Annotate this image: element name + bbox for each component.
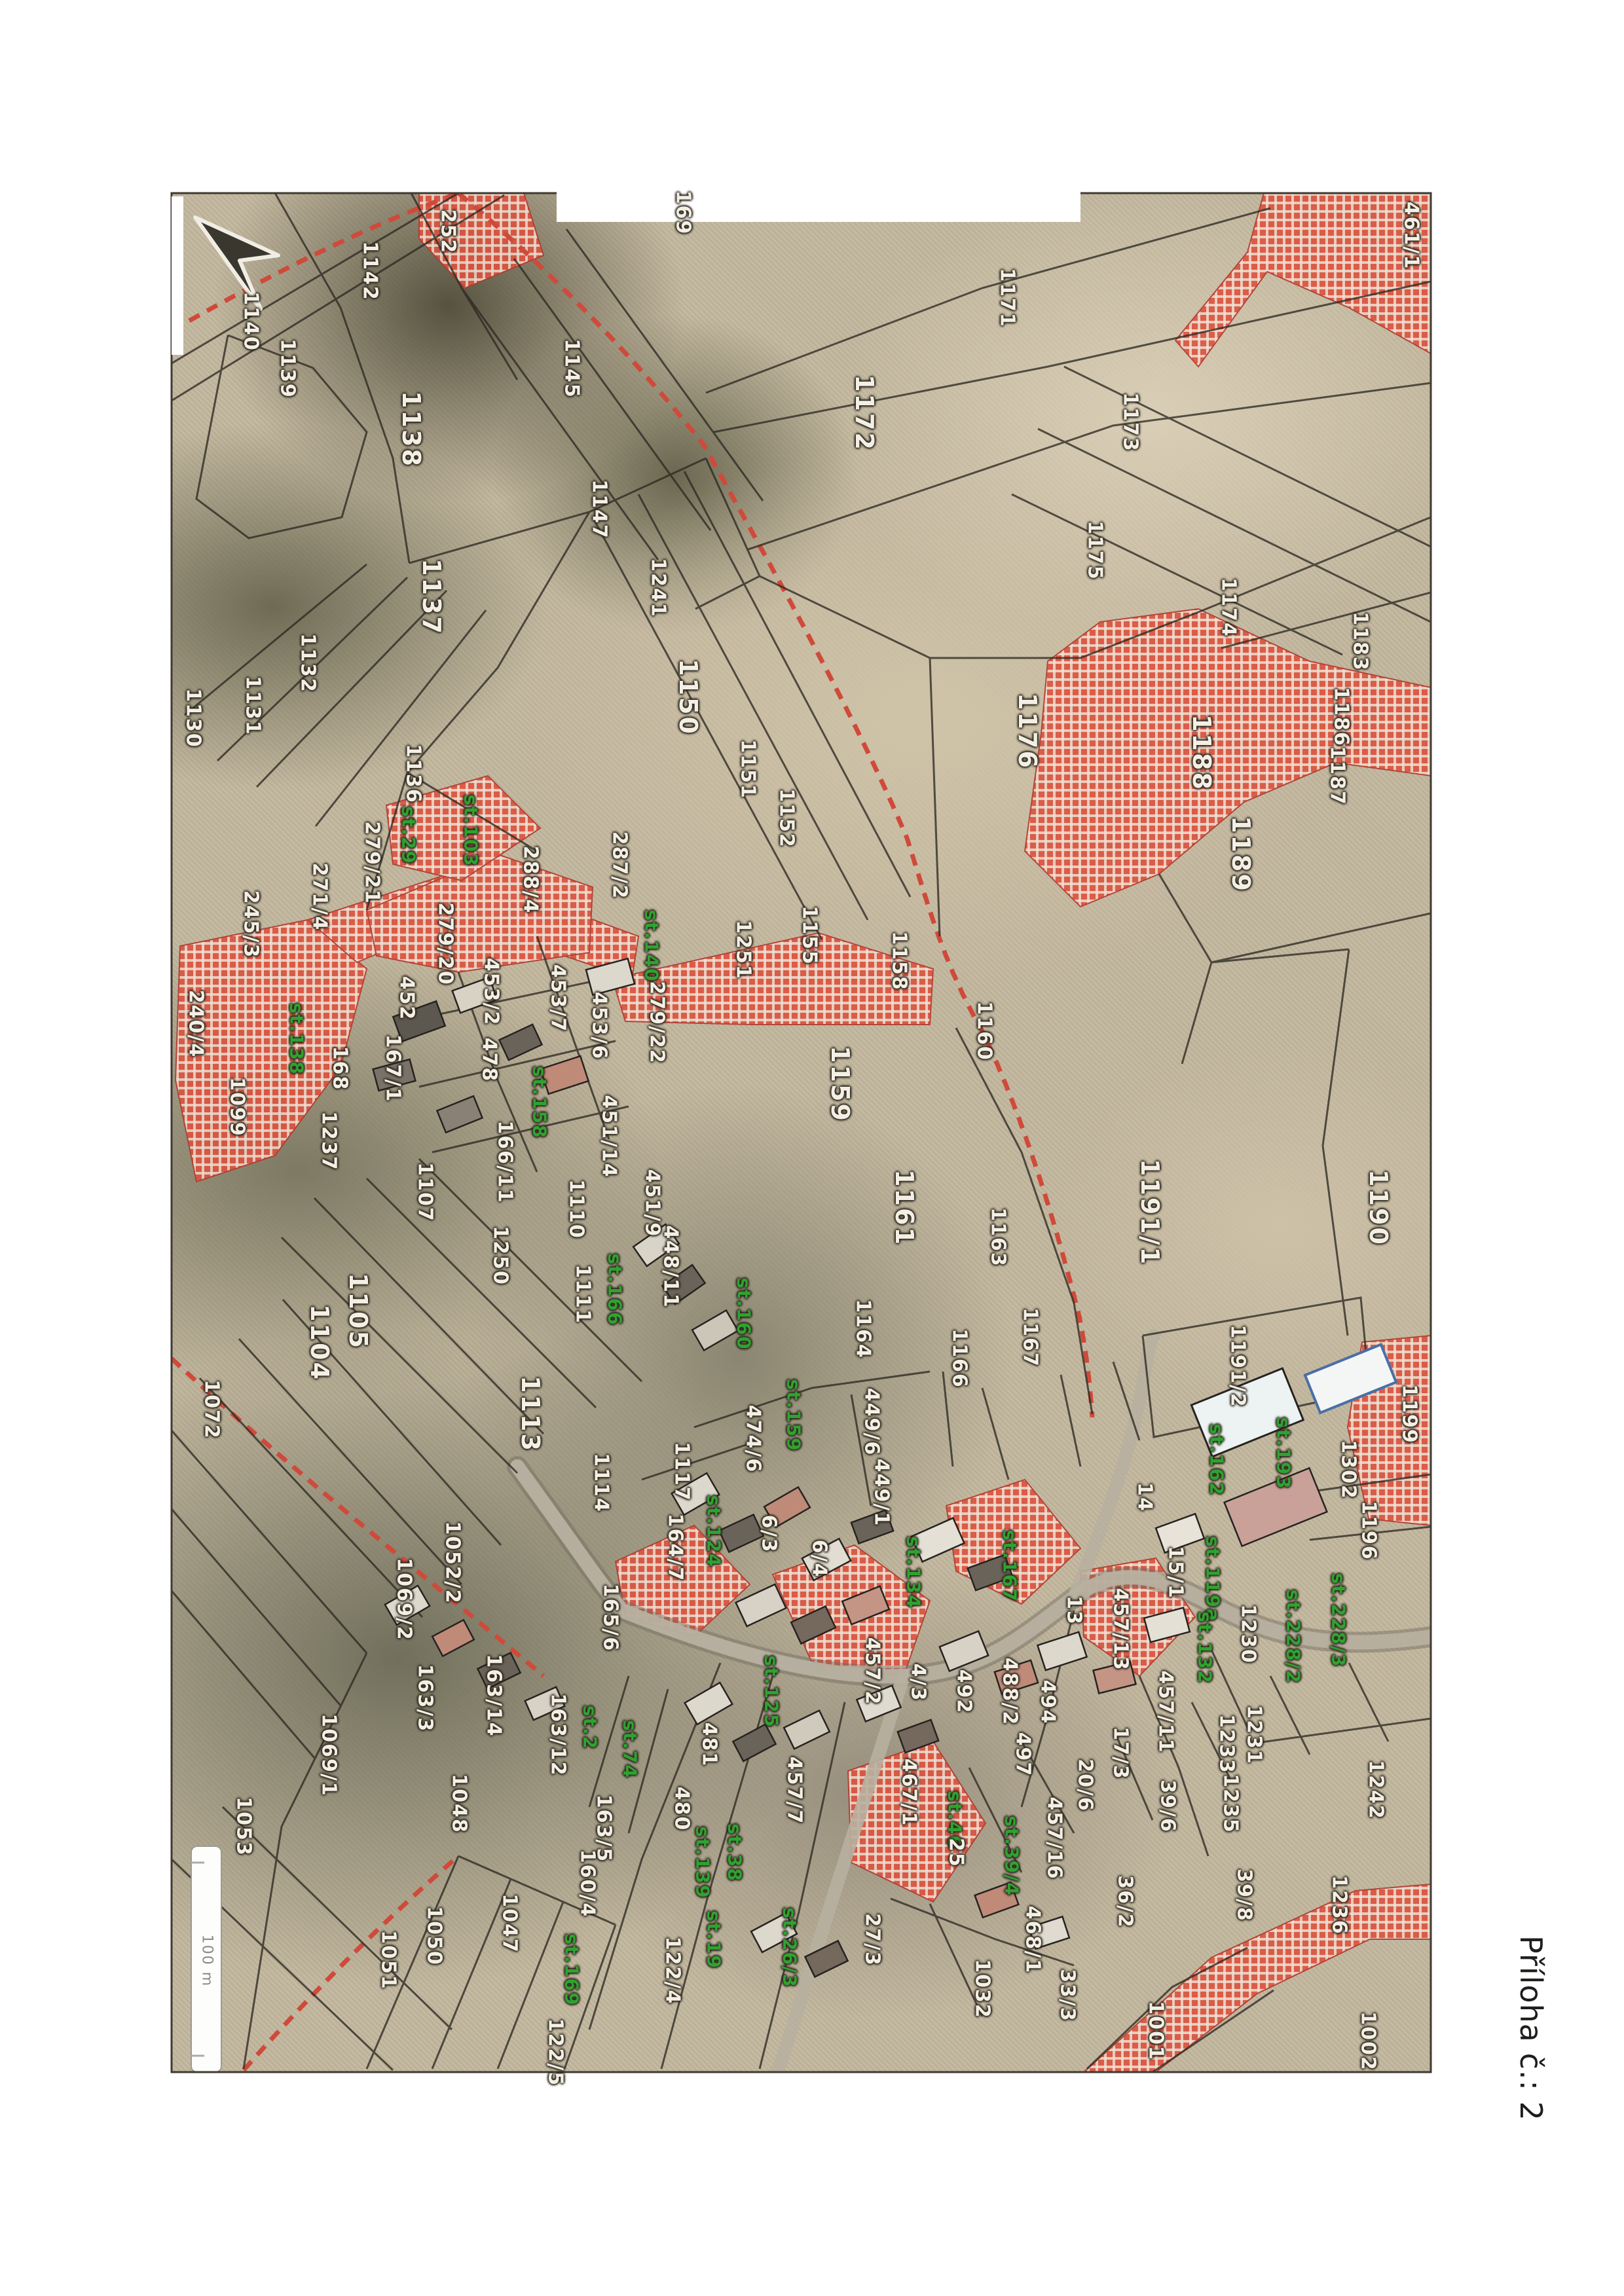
map-border	[172, 193, 1431, 2072]
attachment-caption: Příloha č.: 2	[1513, 1935, 1549, 2121]
scan-margin-strip-left	[172, 196, 183, 355]
red-hatch-areas	[175, 193, 1431, 2072]
map-overlay-graphics	[0, 0, 1624, 2296]
parcel-boundary-lines	[172, 191, 1431, 2072]
north-arrow-icon	[195, 217, 278, 309]
scan-margin-strip-top	[557, 192, 1080, 222]
scale-bar-label: 100 m	[199, 1935, 215, 1987]
scanned-page: 2521142114011391138114516911711172117311…	[0, 0, 1624, 2296]
